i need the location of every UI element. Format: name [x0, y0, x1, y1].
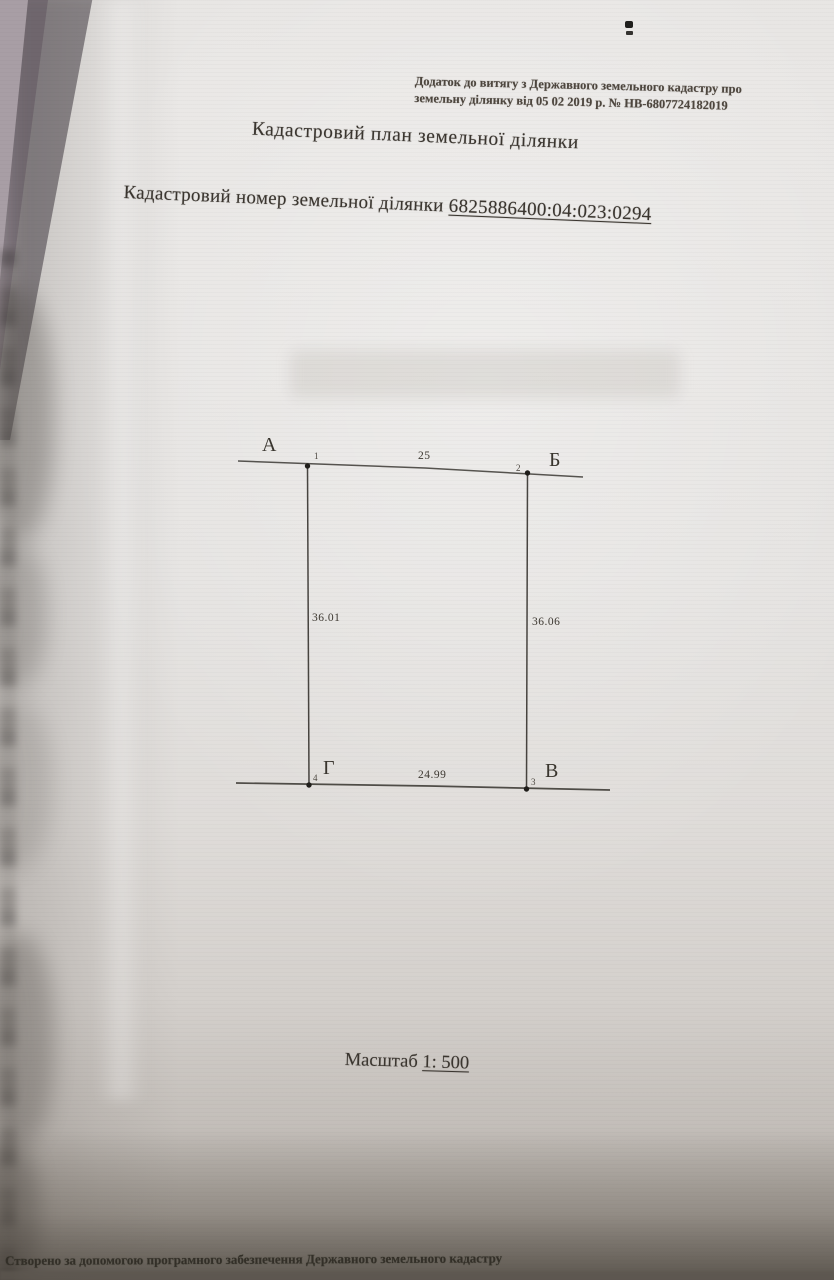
page-bottom-edge — [0, 1271, 834, 1280]
corner-label-g: Г — [323, 757, 335, 779]
vertex-number-1: 1 — [314, 451, 319, 461]
extract-reference-note: Додаток до витягу з Державного земельног… — [414, 73, 760, 115]
side-length-bottom: 24.99 — [418, 769, 446, 781]
boundary-line-right — [527, 473, 528, 789]
vertex-number-3: 3 — [531, 777, 536, 787]
paper-crease-highlight — [98, 0, 144, 1100]
side-length-left: 36.01 — [312, 612, 340, 624]
scan-smudge — [0, 935, 54, 1145]
vertex-number-4: 4 — [313, 773, 318, 783]
vertex-number-2: 2 — [516, 463, 521, 473]
boundary-line-top — [238, 461, 583, 477]
staple-mark — [625, 21, 633, 28]
scale-label: Масштаб — [344, 1050, 422, 1072]
vertex-dot-3 — [524, 786, 529, 791]
side-length-right: 36.06 — [532, 616, 560, 628]
boundary-line-left — [308, 466, 310, 785]
vertex-dot-1 — [305, 463, 310, 468]
scale-line: Масштаб 1: 500 — [344, 1050, 469, 1074]
staple-mark — [626, 31, 633, 35]
corner-label-b: Б — [549, 449, 560, 471]
staple-marks — [625, 21, 633, 35]
vertex-dot-4 — [306, 782, 311, 787]
boundary-line-bottom — [236, 783, 610, 790]
cadastral-plan-diagram: А Б В Г 1 2 3 4 25 36.06 24.99 36.01 — [225, 420, 625, 815]
corner-label-a: А — [262, 434, 277, 456]
scale-value: 1: 500 — [422, 1052, 469, 1073]
vertex-dot-2 — [525, 470, 530, 475]
cadastral-number-line: Кадастровий номер земельної ділянки 6825… — [123, 182, 763, 231]
corner-label-v: В — [545, 760, 558, 782]
ink-bleedthrough — [290, 350, 680, 398]
side-length-top: 25 — [418, 450, 431, 462]
scanned-cadastral-document: Додаток до витягу з Державного земельног… — [0, 0, 834, 1280]
cadastral-number-value: 6825886400:04:023:0294 — [448, 196, 652, 225]
document-title: Кадастровий план земельної ділянки — [235, 118, 596, 155]
